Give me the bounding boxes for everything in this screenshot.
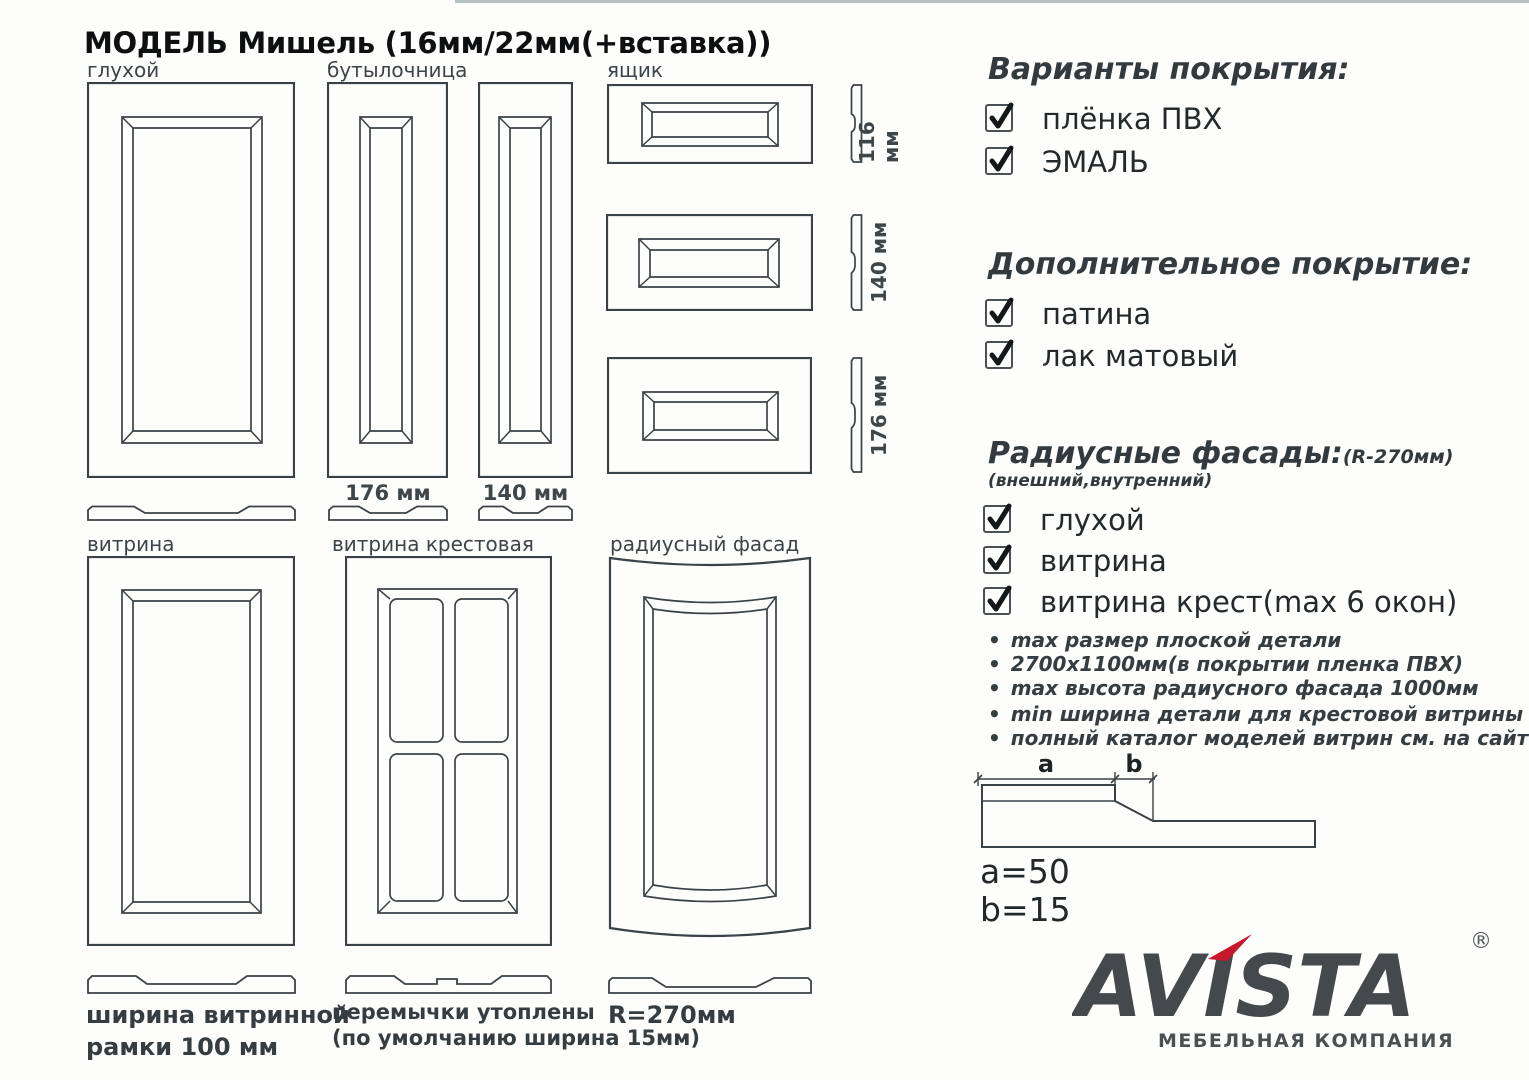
checkbox-patina[interactable]: [985, 299, 1012, 326]
value-b: b=15: [980, 890, 1071, 929]
note-min-cross-width: min ширина детали для крестовой витрины …: [988, 702, 1529, 726]
radius-note: R=270мм: [608, 1000, 736, 1030]
option-label-enamel: ЭМАЛЬ: [1042, 147, 1149, 177]
radius-section-title: Радиусные фасады:(R-270мм): [988, 436, 1453, 471]
narrow-door-drawing: [478, 82, 573, 478]
option-label-patina: патина: [1042, 299, 1151, 329]
solid-door-profile: [87, 505, 296, 521]
drawer-176-drawing: [607, 357, 812, 474]
drawer-176-side-profile: [850, 357, 863, 473]
narrow-door-profile: [478, 505, 573, 521]
label-vitrine-cross: витрина крестовая: [332, 532, 534, 556]
solid-door-drawing: [87, 82, 295, 478]
option-label-radius-vitrine: витрина: [1040, 546, 1167, 576]
vitrine-frame-note-line1: ширина витринной: [86, 1000, 350, 1030]
option-label-pvc: плёнка ПВХ: [1042, 104, 1222, 134]
checkbox-radius-vitrine-cross[interactable]: [983, 587, 1010, 614]
top-divider-line: [455, 0, 1529, 3]
drawer-dim-116: 116 мм: [864, 84, 894, 163]
radius-facade-drawing: [608, 554, 812, 946]
checkbox-coating-pvc[interactable]: [985, 104, 1012, 131]
checkbox-radius-vitrine[interactable]: [983, 546, 1010, 573]
drawer-140-side-profile: [850, 214, 863, 311]
checkbox-coating-enamel[interactable]: [985, 147, 1012, 174]
label-vitrine: витрина: [87, 532, 174, 556]
note-max-radius-height: max высота радиусного фасада 1000мм: [988, 676, 1479, 700]
drawer-116-drawing: [607, 84, 813, 164]
option-label-radius-vitrine-cross: витрина крест(max 6 окон): [1040, 587, 1457, 617]
label-bottle-door: бутылочница: [327, 58, 467, 82]
value-a: a=50: [980, 852, 1070, 891]
note-max-flat-size: max размер плоской детали: [988, 628, 1341, 652]
option-label-matte-lacquer: лак матовый: [1042, 341, 1238, 371]
note-dimensions-pvc: 2700х1100мм(в покрытии пленка ПВХ): [988, 652, 1463, 676]
label-radius-facade: радиусный фасад: [610, 532, 799, 556]
avista-logo: AVISTA ® МЕБЕЛЬНАЯ КОМПАНИЯ: [1072, 922, 1512, 1062]
logo-wordmark: AVISTA: [1072, 937, 1416, 1037]
radius-section-subtitle: (внешний,внутренний): [988, 471, 1212, 491]
vitrine-profile: [87, 975, 296, 994]
dim-b-label: b: [1125, 750, 1142, 778]
checkbox-radius-solid[interactable]: [983, 505, 1010, 532]
logo-tagline: МЕБЕЛЬНАЯ КОМПАНИЯ: [1158, 1030, 1454, 1052]
checkbox-matte-lacquer[interactable]: [985, 341, 1012, 368]
vitrine-frame-note-line2: рамки 100 мм: [86, 1032, 278, 1062]
option-label-radius-solid: глухой: [1040, 505, 1145, 535]
vitrine-cross-profile: [345, 975, 552, 994]
label-solid-door: глухой: [87, 58, 159, 82]
coating-section-title: Варианты покрытия:: [988, 52, 1350, 87]
dim-176: 176 мм: [328, 481, 448, 505]
bottle-door-profile: [328, 505, 448, 521]
dim-140: 140 мм: [478, 481, 573, 505]
label-drawer: ящик: [607, 58, 663, 82]
dim-a-label: a: [1038, 750, 1054, 778]
edge-profile-diagram: a b: [960, 750, 1350, 852]
cross-note-line1: перемычки утоплены: [332, 999, 595, 1025]
page-title: МОДЕЛЬ Мишель (16мм/22мм(+вставка)): [84, 26, 771, 60]
drawer-dim-176: 176 мм: [864, 357, 894, 473]
drawer-dim-140: 140 мм: [864, 214, 894, 311]
drawer-140-drawing: [606, 214, 813, 311]
radius-facade-profile: [608, 977, 812, 994]
bottle-door-drawing: [327, 82, 448, 478]
registered-mark: ®: [1470, 929, 1492, 954]
vitrine-cross-door-drawing: [345, 556, 552, 946]
extra-coating-section-title: Дополнительное покрытие:: [988, 247, 1472, 282]
vitrine-door-drawing: [87, 556, 295, 946]
note-full-catalog: полный каталог моделей витрин см. на сай…: [988, 726, 1529, 750]
radius-section-title-text: Радиусные фасады:: [988, 436, 1343, 471]
radius-section-title-suffix: (R-270мм): [1343, 446, 1454, 468]
